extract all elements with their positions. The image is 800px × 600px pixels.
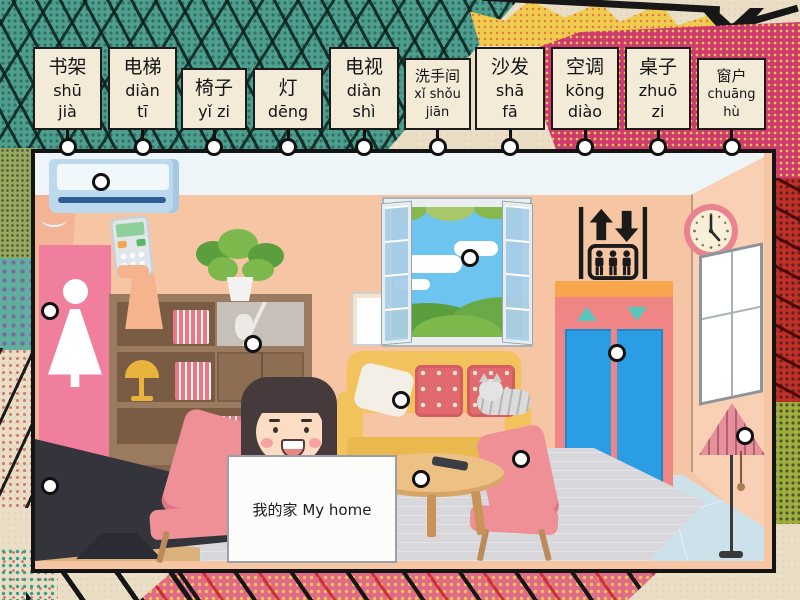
pin-stem (287, 130, 290, 138)
flower-cushion (415, 365, 463, 417)
label-card-sofa[interactable]: 沙发 shā fā (475, 47, 545, 130)
ac-airflow (41, 211, 67, 227)
target-bookshelf[interactable] (244, 335, 262, 353)
pin-stem (657, 130, 660, 138)
pin-handle[interactable] (205, 138, 223, 156)
pin-handle[interactable] (279, 138, 297, 156)
label-group-xishoujian: 洗手间 xǐ shǒu jiān (404, 36, 471, 156)
label-card-chair[interactable]: 椅子 yǐ zi (181, 68, 247, 130)
side-window (699, 242, 763, 406)
pin-handle[interactable] (429, 138, 447, 156)
elevator-header (555, 281, 673, 297)
woman-brow (269, 419, 280, 422)
remote-screen (116, 222, 145, 238)
window-sash-left (382, 202, 411, 345)
label-group-deng: 灯 dēng (253, 36, 323, 156)
target-coffee-table[interactable] (412, 470, 430, 488)
label-hanzi: 空调 (554, 55, 616, 80)
target-air-conditioner[interactable] (92, 173, 110, 191)
woman-brow (301, 419, 312, 422)
lamp-pull-chain (740, 451, 742, 485)
picture-frame (351, 292, 383, 346)
woman-blush (261, 438, 273, 448)
my-home-sign: 我的家 My home (227, 455, 397, 563)
label-card-bathroom[interactable]: 洗手间 xǐ shǒu jiān (404, 58, 471, 130)
label-pinyin: zhuō zi (628, 80, 688, 122)
plant-pot (224, 277, 256, 301)
ac-panel (57, 164, 169, 190)
pin-handle[interactable] (59, 138, 77, 156)
label-group-shujia: 书架 shū jià (33, 36, 102, 156)
label-group-dianshi: 电视 diàn shì (329, 36, 399, 156)
label-card-table[interactable]: 桌子 zhuō zi (625, 47, 691, 130)
label-pinyin: diàn tī (111, 80, 174, 122)
label-group-zhuozi: 桌子 zhuō zi (625, 36, 691, 156)
label-hanzi: 电梯 (111, 55, 174, 80)
label-hanzi: 椅子 (184, 76, 244, 101)
pin-handle[interactable] (649, 138, 667, 156)
cat (477, 377, 531, 419)
room-scene: 我的家 My home (31, 149, 776, 573)
label-hanzi: 桌子 (628, 55, 688, 80)
hand-fingers (117, 265, 149, 278)
woman-icon (63, 279, 88, 304)
ac-vent (58, 197, 166, 203)
label-pinyin: xǐ shǒu jiān (407, 86, 468, 122)
pin-handle[interactable] (134, 138, 152, 156)
label-card-window[interactable]: 窗户 chuāng hù (697, 58, 766, 130)
label-group-yizi: 椅子 yǐ zi (181, 36, 247, 156)
elevator-sign-icon (574, 205, 652, 281)
label-card-elevator[interactable]: 电梯 diàn tī (108, 47, 177, 130)
label-hanzi: 灯 (256, 76, 320, 101)
pin-stem (66, 130, 69, 138)
label-group-chuanghu: 窗户 chuāng hù (697, 36, 766, 156)
label-pinyin: shū jià (36, 80, 99, 122)
target-window[interactable] (461, 249, 479, 267)
label-card-tv[interactable]: 电视 diàn shì (329, 47, 399, 130)
label-pinyin: kōng diào (554, 80, 616, 122)
target-elevator[interactable] (608, 344, 626, 362)
floor-lamp-pole (730, 453, 733, 555)
label-pinyin: yǐ zi (184, 101, 244, 122)
pin-stem (584, 130, 587, 138)
target-tv[interactable] (41, 477, 59, 495)
books (173, 310, 209, 344)
target-chair[interactable] (512, 450, 530, 468)
table-lamp (125, 360, 159, 378)
pin-handle[interactable] (501, 138, 519, 156)
pin-stem (509, 130, 512, 138)
pin-stem (213, 130, 216, 138)
woman-eye (304, 427, 309, 433)
pin-stem (730, 130, 733, 138)
potted-plant (190, 227, 290, 301)
target-bathroom-sign[interactable] (41, 302, 59, 320)
air-conditioner (49, 159, 179, 213)
target-sofa[interactable] (392, 391, 410, 409)
pin-stem (141, 130, 144, 138)
woman-blush (309, 438, 321, 448)
label-group-kongtiao: 空调 kōng diào (551, 36, 619, 156)
target-floor-lamp[interactable] (736, 427, 754, 445)
floor-lamp-base (719, 551, 743, 558)
label-card-aircon[interactable]: 空调 kōng diào (551, 47, 619, 130)
pin-handle[interactable] (355, 138, 373, 156)
label-card-bookshelf[interactable]: 书架 shū jià (33, 47, 102, 130)
lamp-pull-bead (737, 483, 745, 491)
label-hanzi: 沙发 (478, 55, 542, 80)
pin-stem (436, 130, 439, 138)
pin-handle[interactable] (576, 138, 594, 156)
label-pinyin: dēng (256, 101, 320, 122)
label-card-lamp[interactable]: 灯 dēng (253, 68, 323, 130)
pin-handle[interactable] (723, 138, 741, 156)
elevator-up-indicator (577, 307, 597, 321)
open-window (382, 197, 532, 347)
label-group-dianti: 电梯 diàn tī (108, 36, 177, 156)
label-pinyin: shā fā (478, 80, 542, 122)
books (175, 362, 211, 400)
my-home-sign-text: 我的家 My home (253, 499, 372, 520)
label-pinyin: chuāng hù (700, 86, 763, 122)
woman-icon-body (48, 309, 102, 387)
pin-stem (363, 130, 366, 138)
label-hanzi: 书架 (36, 55, 99, 80)
label-hanzi: 窗户 (700, 66, 763, 86)
woman-eye (273, 427, 278, 433)
label-hanzi: 电视 (332, 55, 396, 80)
label-hanzi: 洗手间 (407, 66, 468, 86)
label-pinyin: diàn shì (332, 80, 396, 122)
window-sash-right (503, 202, 532, 345)
label-group-shafa: 沙发 shā fā (475, 36, 545, 156)
elevator-down-indicator (627, 307, 647, 321)
